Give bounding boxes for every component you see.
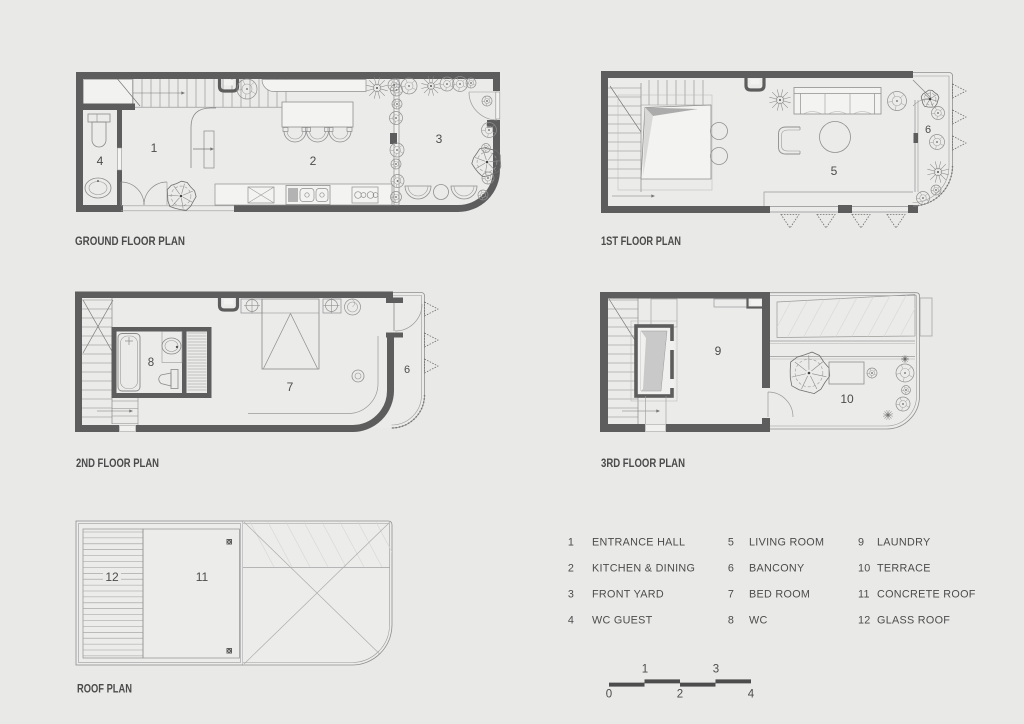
svg-text:5: 5 — [728, 537, 734, 549]
svg-text:7: 7 — [728, 589, 734, 601]
svg-text:BANCONY: BANCONY — [749, 563, 805, 575]
svg-text:2: 2 — [568, 563, 574, 575]
svg-text:0: 0 — [606, 689, 612, 701]
svg-text:5: 5 — [831, 164, 838, 178]
svg-text:TERRACE: TERRACE — [877, 563, 931, 575]
svg-text:WC: WC — [749, 615, 768, 627]
svg-text:8: 8 — [148, 357, 154, 369]
svg-text:9: 9 — [858, 537, 864, 549]
svg-text:2: 2 — [310, 154, 317, 168]
svg-text:3RD FLOOR PLAN: 3RD FLOOR PLAN — [601, 456, 685, 470]
svg-text:1: 1 — [568, 537, 574, 549]
svg-text:WC GUEST: WC GUEST — [592, 615, 653, 627]
svg-text:6: 6 — [925, 124, 931, 136]
svg-text:4: 4 — [568, 615, 574, 627]
svg-text:2ND FLOOR PLAN: 2ND FLOOR PLAN — [76, 456, 159, 470]
svg-text:1ST FLOOR PLAN: 1ST FLOOR PLAN — [601, 234, 681, 248]
svg-text:CONCRETE ROOF: CONCRETE ROOF — [877, 589, 976, 601]
svg-text:KITCHEN & DINING: KITCHEN & DINING — [592, 563, 695, 575]
svg-text:3: 3 — [568, 589, 574, 601]
svg-text:11: 11 — [858, 589, 870, 601]
svg-text:1: 1 — [642, 664, 648, 676]
svg-text:6: 6 — [404, 364, 410, 376]
svg-text:GROUND FLOOR PLAN: GROUND FLOOR PLAN — [75, 234, 185, 248]
svg-text:2: 2 — [677, 689, 683, 701]
svg-text:FRONT YARD: FRONT YARD — [592, 589, 664, 601]
svg-text:12: 12 — [105, 570, 119, 584]
svg-text:LAUNDRY: LAUNDRY — [877, 537, 931, 549]
svg-text:11: 11 — [196, 570, 209, 584]
svg-text:ENTRANCE HALL: ENTRANCE HALL — [592, 537, 685, 549]
svg-text:GLASS ROOF: GLASS ROOF — [877, 615, 950, 627]
svg-text:12: 12 — [858, 615, 871, 627]
svg-text:3: 3 — [713, 664, 719, 676]
svg-text:4: 4 — [748, 689, 755, 701]
svg-text:7: 7 — [287, 380, 294, 394]
svg-text:8: 8 — [728, 615, 734, 627]
svg-text:4: 4 — [97, 154, 104, 168]
svg-text:LIVING ROOM: LIVING ROOM — [749, 537, 824, 549]
svg-text:BED ROOM: BED ROOM — [749, 589, 810, 601]
svg-text:1: 1 — [151, 141, 158, 155]
svg-text:6: 6 — [728, 563, 734, 575]
svg-text:3: 3 — [436, 132, 443, 146]
svg-text:10: 10 — [840, 392, 854, 406]
svg-text:10: 10 — [858, 563, 871, 575]
svg-text:ROOF PLAN: ROOF PLAN — [77, 682, 132, 696]
svg-text:9: 9 — [715, 344, 722, 358]
